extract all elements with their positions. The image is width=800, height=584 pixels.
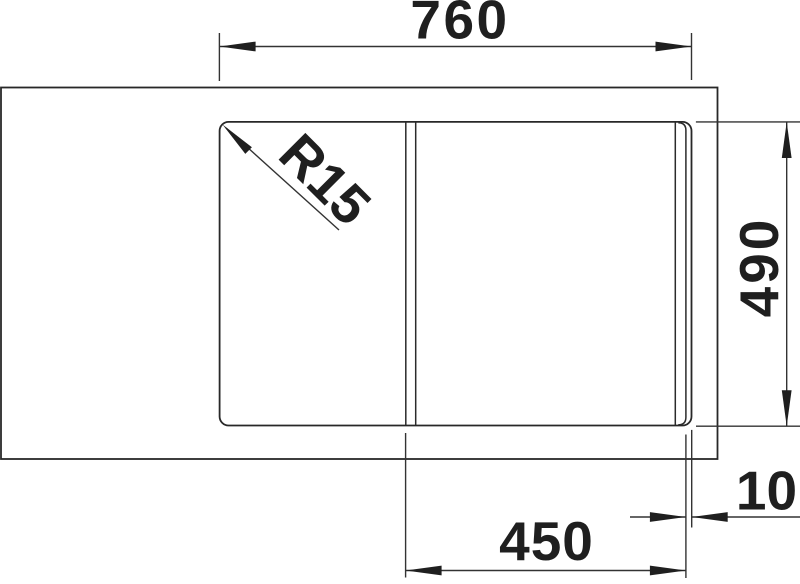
- svg-text:450: 450: [499, 510, 594, 572]
- svg-text:490: 490: [728, 217, 790, 318]
- svg-text:10: 10: [736, 460, 797, 522]
- svg-text:760: 760: [410, 0, 509, 51]
